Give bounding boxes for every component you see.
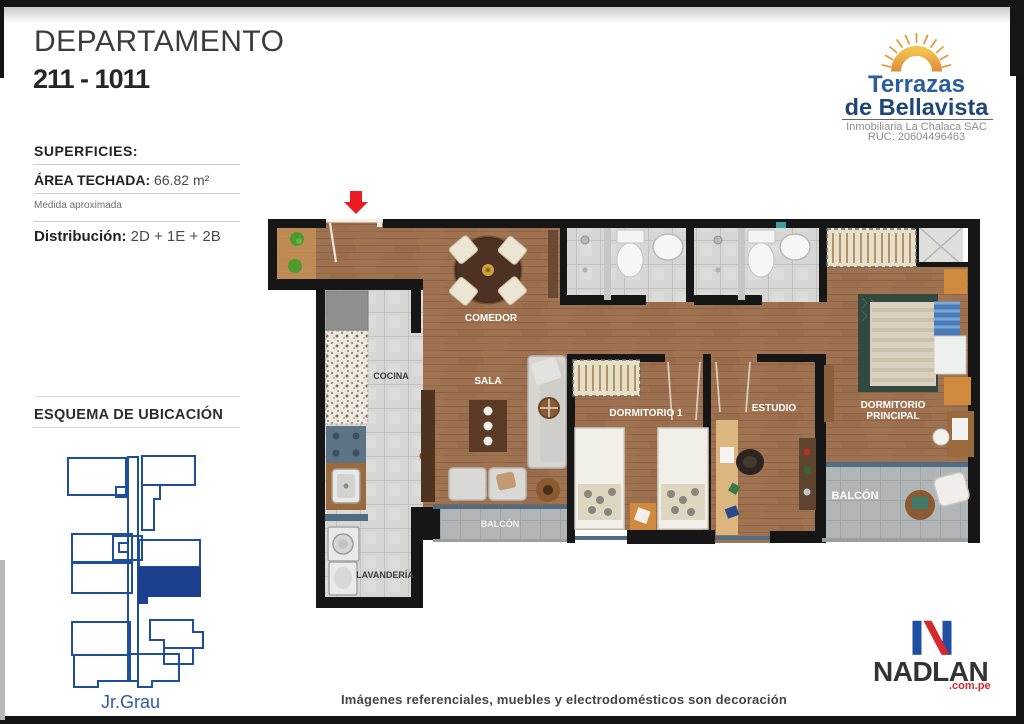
svg-text:COCINA: COCINA bbox=[373, 371, 409, 381]
svg-text:COMEDOR: COMEDOR bbox=[465, 313, 518, 324]
svg-text:ESTUDIO: ESTUDIO bbox=[752, 403, 797, 414]
svg-text:BALCÓN: BALCÓN bbox=[481, 518, 520, 529]
svg-text:DORMITORIO: DORMITORIO bbox=[861, 400, 926, 411]
svg-text:LAVANDERÍA: LAVANDERÍA bbox=[356, 570, 414, 580]
svg-text:BALCÓN: BALCÓN bbox=[831, 489, 878, 502]
svg-text:PRINCIPAL: PRINCIPAL bbox=[866, 411, 919, 422]
svg-text:SALA: SALA bbox=[474, 376, 501, 387]
svg-text:DORMITORIO 1: DORMITORIO 1 bbox=[609, 408, 683, 419]
